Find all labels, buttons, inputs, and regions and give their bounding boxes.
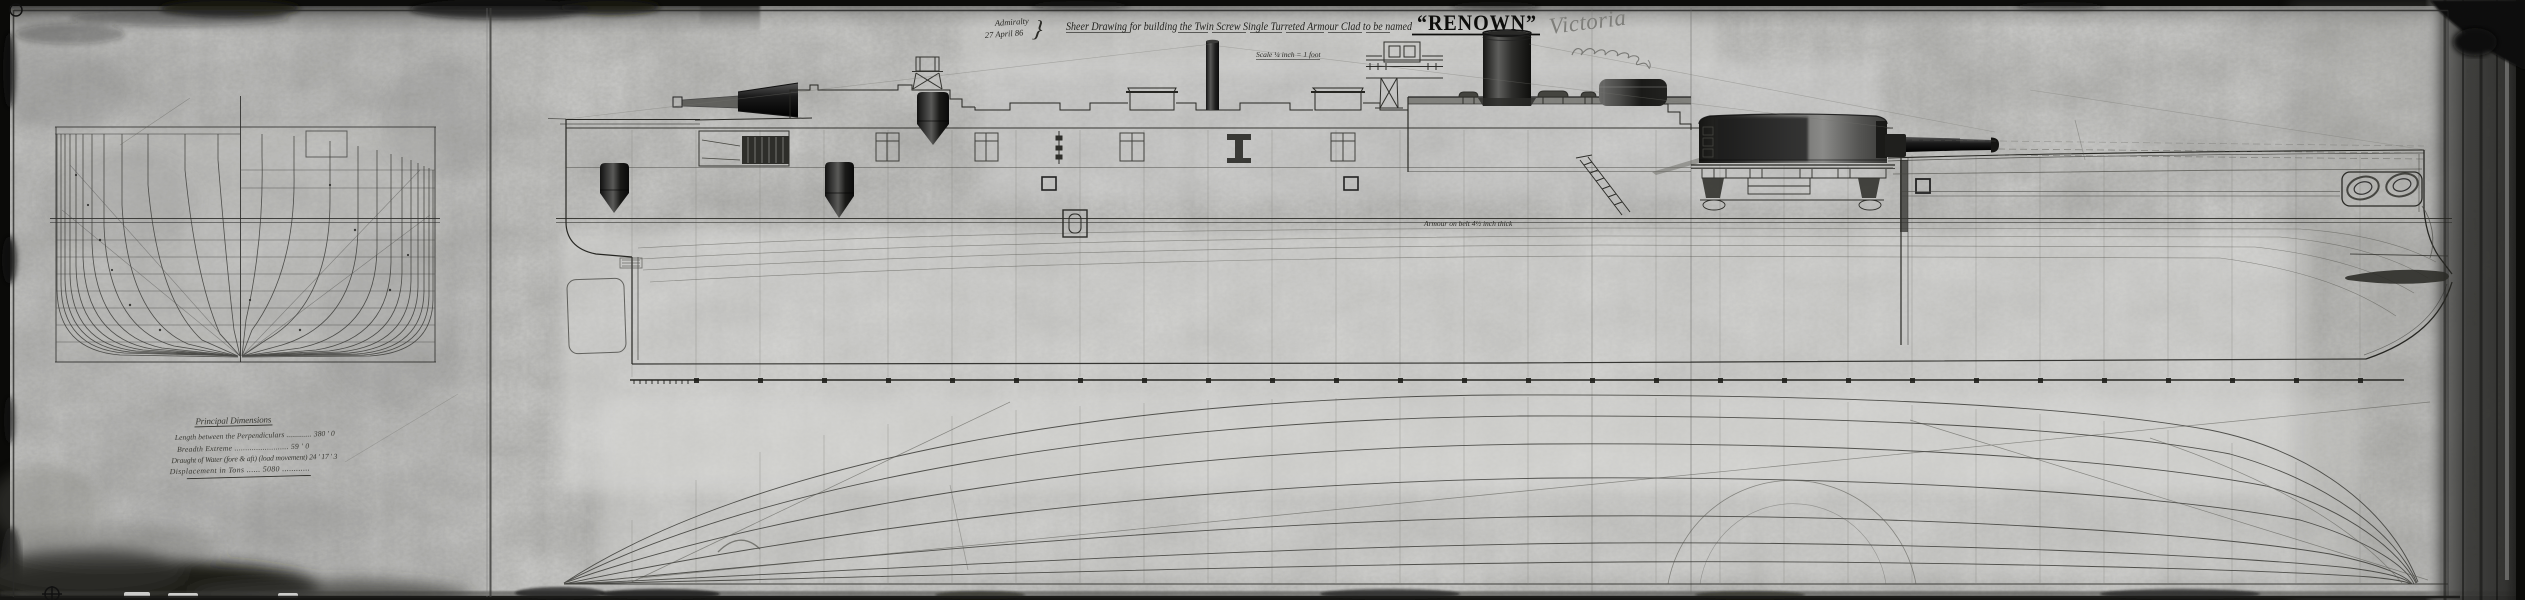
svg-text:Armour on belt 4½ inch thick: Armour on belt 4½ inch thick <box>1423 219 1513 228</box>
svg-text:Sheer Drawing for building the: Sheer Drawing for building the Twin Scre… <box>1066 21 1412 33</box>
svg-text:Principal Dimensions: Principal Dimensions <box>194 414 272 426</box>
